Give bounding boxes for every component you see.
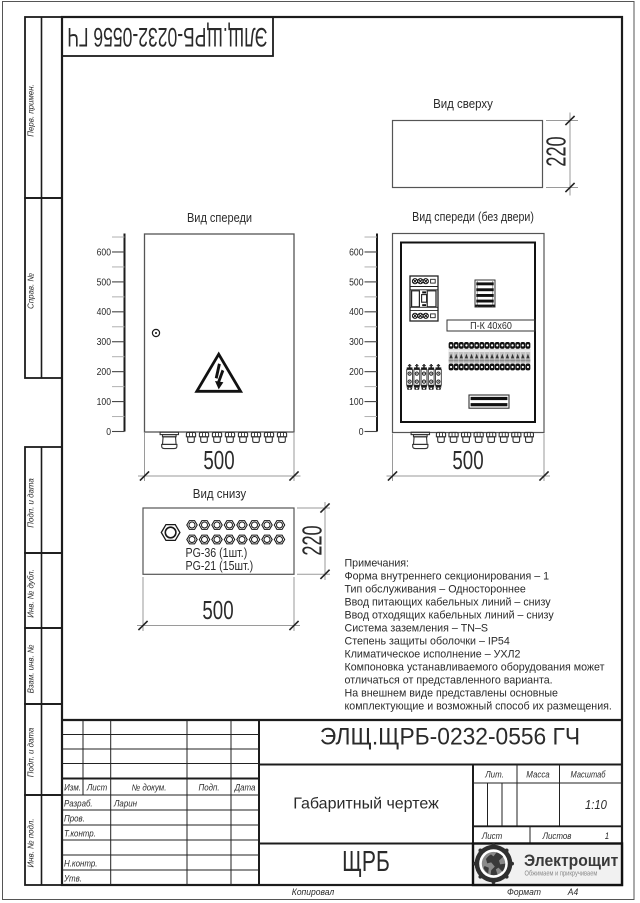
svg-text:Копировал: Копировал bbox=[292, 887, 334, 898]
svg-text:200: 200 bbox=[97, 367, 111, 378]
svg-text:Инв. № подл.: Инв. № подл. bbox=[26, 818, 35, 867]
svg-text:Масштаб: Масштаб bbox=[571, 770, 606, 780]
svg-text:400: 400 bbox=[97, 307, 111, 318]
svg-text:Вид спереди: Вид спереди bbox=[187, 211, 252, 225]
svg-text:Подп. и дата: Подп. и дата bbox=[26, 478, 35, 528]
svg-text:Вид спереди (без двери): Вид спереди (без двери) bbox=[412, 210, 534, 224]
svg-text:№ докум.: № докум. bbox=[132, 782, 167, 793]
svg-text:Ввод отходящих кабельных линий: Ввод отходящих кабельных линий – снизу bbox=[345, 609, 555, 621]
svg-text:ЭЛЩ.ЩРБ-0232-0556 ГЧ: ЭЛЩ.ЩРБ-0232-0556 ГЧ bbox=[320, 723, 580, 750]
svg-text:Ларин: Ларин bbox=[113, 798, 137, 809]
svg-text:ЭЛЩ.ЩРБ-0232-0556 ГЧ: ЭЛЩ.ЩРБ-0232-0556 ГЧ bbox=[67, 22, 267, 53]
svg-text:Тип обслуживания – Односторонн: Тип обслуживания – Одностороннее bbox=[345, 583, 526, 595]
svg-text:Система заземления – TN–S: Система заземления – TN–S bbox=[345, 622, 489, 634]
svg-text:300: 300 bbox=[349, 337, 363, 348]
svg-text:Пров.: Пров. bbox=[64, 813, 85, 824]
svg-text:отличаться от представленного: отличаться от представленного варианта. bbox=[345, 674, 553, 686]
svg-text:Обжимаем и прикручиваем: Обжимаем и прикручиваем bbox=[525, 869, 598, 878]
svg-text:Вид снизу: Вид снизу bbox=[193, 487, 246, 502]
svg-text:Габаритный чертеж: Габаритный чертеж bbox=[293, 796, 439, 813]
svg-text:PG-36 (1шт.): PG-36 (1шт.) bbox=[186, 546, 248, 560]
svg-text:А4: А4 bbox=[567, 887, 578, 898]
svg-text:комплектующие и возможный спос: комплектующие и возможный способ их разм… bbox=[345, 700, 612, 712]
svg-text:Взам. инв. №: Взам. инв. № bbox=[26, 645, 35, 694]
svg-text:Изм.: Изм. bbox=[64, 782, 81, 793]
svg-text:500: 500 bbox=[452, 445, 483, 475]
svg-text:Масса: Масса bbox=[526, 769, 550, 780]
svg-text:Подп.: Подп. bbox=[198, 782, 219, 793]
svg-text:PG-21 (15шт.): PG-21 (15шт.) bbox=[186, 559, 254, 573]
svg-text:Примечания:: Примечания: bbox=[345, 557, 410, 569]
svg-text:Степень защиты оболочки – IP54: Степень защиты оболочки – IP54 bbox=[345, 635, 510, 647]
svg-text:Утв.: Утв. bbox=[63, 873, 82, 884]
svg-text:0: 0 bbox=[359, 426, 364, 437]
svg-text:200: 200 bbox=[349, 367, 363, 378]
svg-text:Лист: Лист bbox=[86, 782, 107, 793]
svg-text:На внешнем виде представлены о: На внешнем виде представлены основные bbox=[345, 687, 558, 699]
svg-text:Климатическое исполнение – УХЛ: Климатическое исполнение – УХЛ2 bbox=[345, 648, 521, 660]
svg-text:Инв. № дубл.: Инв. № дубл. bbox=[26, 569, 35, 618]
svg-text:Вид сверху: Вид сверху bbox=[433, 97, 493, 112]
svg-text:Н.контр.: Н.контр. bbox=[64, 858, 97, 869]
svg-text:Форма внутреннего секционирова: Форма внутреннего секционирования – 1 bbox=[345, 570, 550, 582]
svg-text:Компоновка устанавливаемого об: Компоновка устанавливаемого оборудования… bbox=[345, 661, 605, 673]
svg-text:Справ. №: Справ. № bbox=[26, 273, 35, 309]
svg-text:Дата: Дата bbox=[234, 782, 256, 793]
svg-text:Ввод питающих кабельных линий: Ввод питающих кабельных линий – снизу bbox=[345, 596, 552, 608]
svg-text:Листов: Листов bbox=[542, 830, 572, 841]
svg-text:Подп. и дата: Подп. и дата bbox=[26, 727, 35, 777]
svg-text:Перв. примен.: Перв. примен. bbox=[26, 84, 35, 137]
svg-text:1: 1 bbox=[605, 830, 609, 841]
svg-text:П-К 40х60: П-К 40х60 bbox=[470, 320, 512, 332]
svg-text:220: 220 bbox=[297, 525, 328, 555]
svg-text:Формат: Формат bbox=[507, 887, 541, 898]
svg-text:100: 100 bbox=[97, 396, 111, 407]
svg-text:Лист: Лист bbox=[481, 830, 502, 841]
svg-text:ЩРБ: ЩРБ bbox=[342, 846, 390, 878]
svg-text:600: 600 bbox=[97, 247, 111, 258]
svg-text:500: 500 bbox=[202, 595, 233, 625]
svg-text:600: 600 bbox=[349, 247, 363, 258]
svg-text:100: 100 bbox=[349, 396, 363, 407]
svg-text:500: 500 bbox=[97, 277, 111, 288]
svg-text:Лит.: Лит. bbox=[484, 769, 503, 780]
svg-text:300: 300 bbox=[97, 337, 111, 348]
svg-text:1:10: 1:10 bbox=[585, 797, 607, 812]
svg-text:400: 400 bbox=[349, 307, 363, 318]
svg-text:500: 500 bbox=[203, 445, 234, 475]
svg-text:Электрощит: Электрощит bbox=[524, 853, 618, 870]
svg-text:0: 0 bbox=[106, 426, 111, 437]
svg-text:Разраб.: Разраб. bbox=[64, 798, 93, 809]
svg-text:220: 220 bbox=[541, 136, 572, 166]
svg-text:500: 500 bbox=[349, 277, 363, 288]
svg-text:Т.контр.: Т.контр. bbox=[64, 828, 96, 839]
